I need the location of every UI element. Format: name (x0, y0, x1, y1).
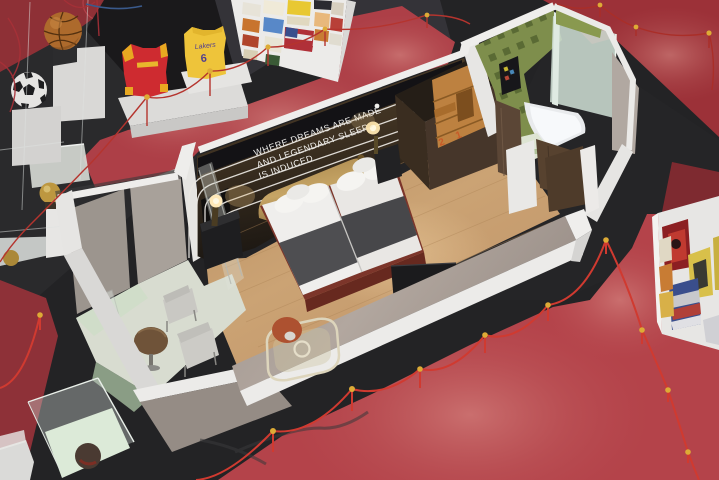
svg-text:6: 6 (200, 53, 207, 65)
